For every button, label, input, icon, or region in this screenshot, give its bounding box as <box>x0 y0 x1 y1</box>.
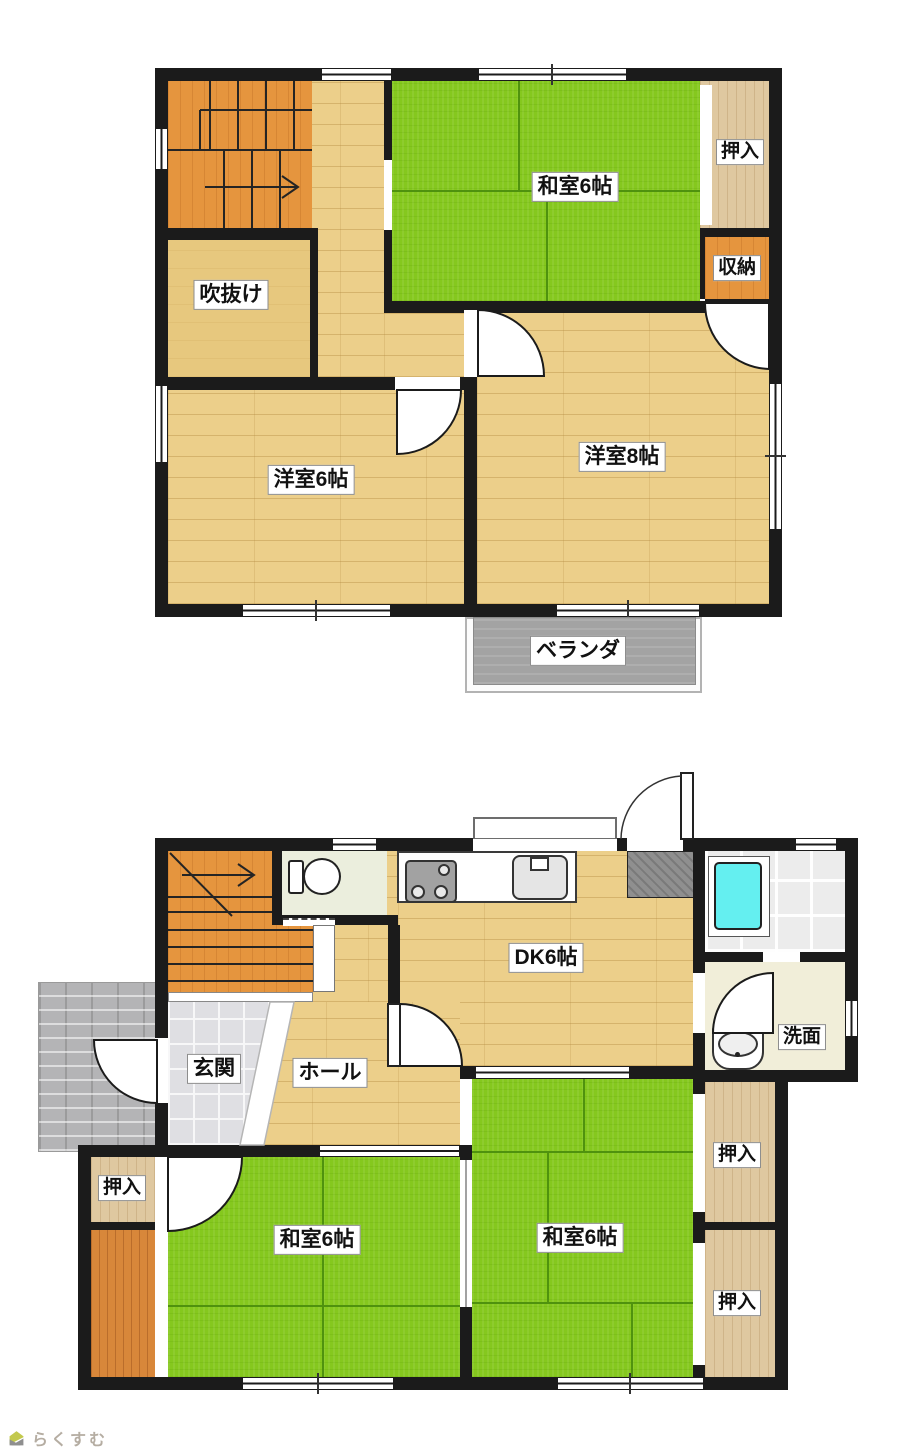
room-label-washitsu-left: 和室6帖 <box>274 1225 361 1255</box>
detail <box>10 1431 24 1437</box>
room-label-oshiire-right-top: 押入 <box>713 1142 761 1168</box>
house-icon <box>8 1430 25 1447</box>
stair-treads-2f <box>168 81 312 228</box>
site-logo: らくすむ <box>8 1426 108 1450</box>
room-label-washitsu-right: 和室6帖 <box>537 1223 624 1253</box>
room-label-hall: ホール <box>293 1058 368 1088</box>
door-arc <box>478 310 544 376</box>
stair-treads-1f <box>168 853 313 981</box>
detail <box>168 81 312 228</box>
washitsu-door-arc <box>168 1157 242 1231</box>
room-label-oshiire-right-bottom: 押入 <box>713 1290 761 1316</box>
room-label-senmen: 洗面 <box>778 1024 826 1050</box>
room-label-shuunou: 収納 <box>713 255 761 281</box>
room-label-dk: DK6帖 <box>508 943 583 973</box>
back-door-leaf <box>681 773 693 839</box>
room-label-oshiire-2f: 押入 <box>716 139 764 165</box>
door-swing-overlay <box>0 0 902 1456</box>
genkan-step-diagonal <box>240 1002 294 1145</box>
room-label-youshitsu8: 洋室8帖 <box>579 442 666 472</box>
door-arc <box>705 303 769 369</box>
logo-text: らくすむ <box>32 1426 108 1450</box>
detail <box>168 853 313 981</box>
room-label-fukinuke: 吹抜け <box>194 280 269 310</box>
room-label-youshitsu6: 洋室6帖 <box>268 465 355 495</box>
floor-plan-canvas: 和室6帖 押入 収納 吹抜け 洋室6帖 洋室8帖 ベランダ DK6帖 玄関 ホー… <box>0 0 902 1456</box>
dk-door-arc <box>400 1004 462 1066</box>
room-label-genkan: 玄関 <box>187 1054 241 1084</box>
room-label-oshiire-left: 押入 <box>98 1175 146 1201</box>
door-arc <box>397 390 461 454</box>
entrance-door-arc <box>94 1040 157 1103</box>
detail <box>182 864 254 886</box>
room-label-veranda: ベランダ <box>530 636 626 666</box>
washroom-door-arc <box>713 973 773 1033</box>
dk-door-leaf <box>388 1004 400 1066</box>
back-door-arc <box>621 776 681 839</box>
room-label-washitsu-2f: 和室6帖 <box>532 172 619 202</box>
